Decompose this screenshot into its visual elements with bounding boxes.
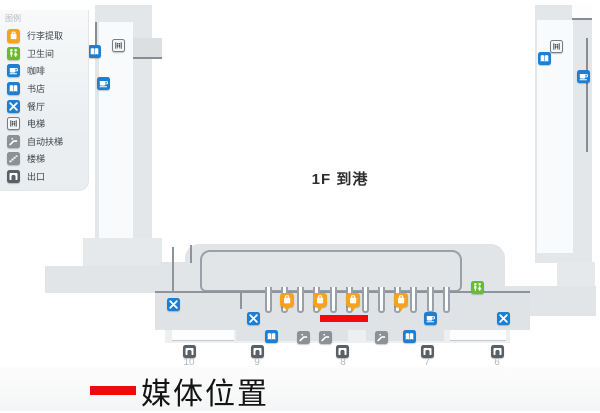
exit-icon: [7, 170, 20, 183]
right-pier-wall-line: [586, 38, 588, 152]
carousel-tooth: [378, 287, 385, 313]
toilet-icon: [471, 281, 484, 294]
gate-number-10: 10: [183, 357, 194, 368]
legend-item-label: 出口: [27, 170, 45, 183]
left-arm-lower: [45, 266, 163, 293]
concourse-slot: [172, 330, 234, 341]
carousel-tooth: [330, 287, 337, 313]
escalator-icon: [375, 331, 388, 344]
right-pier-tab: [572, 5, 592, 20]
escalator-icon: [7, 135, 20, 148]
wall-line: [190, 245, 192, 263]
toilet-icon: [7, 47, 20, 60]
arrivals-corridor: [155, 291, 530, 330]
escalator-icon: [297, 331, 310, 344]
escalator-icon: [319, 331, 332, 344]
restaurant-icon: [167, 298, 180, 311]
legend-item-label: 楼梯: [27, 152, 45, 165]
elevator-icon: [112, 39, 125, 52]
legend-item-label: 行李提取: [27, 29, 63, 42]
carousel-tooth: [410, 287, 417, 313]
carousel-tooth: [443, 287, 450, 313]
legend-item-bookstore: 书店: [0, 80, 88, 98]
legend-item-toilet: 卫生间: [0, 45, 88, 63]
legend-item-stairs: 楼梯: [0, 150, 88, 168]
legend-item-label: 餐厅: [27, 100, 45, 113]
airport-floor-map-page: 1F 到港 109876 图例 行李提取卫生间咖啡书店餐厅电梯自动扶梯楼梯出口 …: [0, 0, 600, 411]
media-line-swatch: [90, 386, 136, 395]
baggage-icon: [7, 29, 20, 43]
media-legend-label: 媒体位置: [141, 369, 269, 413]
legend-item-label: 卫生间: [27, 47, 54, 60]
legend-item-baggage: 行李提取: [0, 27, 88, 45]
legend-title: 图例: [5, 13, 88, 24]
legend-item-coffee: 咖啡: [0, 62, 88, 80]
gate-number-8: 8: [340, 357, 346, 368]
coffee-icon: [7, 64, 20, 77]
restaurant-icon: [497, 312, 510, 325]
concourse-slot: [450, 330, 506, 341]
floor-label: 1F 到港: [280, 168, 400, 189]
elevator-icon: [7, 117, 20, 130]
legend-item-restaurant: 餐厅: [0, 97, 88, 115]
elevator-icon: [550, 40, 563, 53]
baggage-claim-hall: [200, 250, 462, 292]
carousel-tooth: [427, 287, 434, 313]
carousel-tooth: [265, 287, 272, 313]
gate-number-9: 9: [254, 357, 260, 368]
bookstore-icon: [265, 330, 278, 343]
bookstore-icon: [7, 82, 20, 95]
bookstore-icon: [538, 52, 551, 65]
left-pier-notch: [133, 38, 162, 59]
bookstore-icon: [403, 330, 416, 343]
left-pier-inner: [99, 22, 133, 250]
legend-item-label: 咖啡: [27, 64, 45, 77]
legend-item-elevator: 电梯: [0, 115, 88, 133]
carousel-tooth: [362, 287, 369, 313]
carousel-tooth: [297, 287, 304, 313]
gate-number-6: 6: [494, 357, 500, 368]
baggage-icon: [346, 293, 360, 307]
legend-item-exit: 出口: [0, 168, 88, 186]
stairs-icon: [7, 152, 20, 165]
bookstore-icon: [88, 45, 101, 58]
legend-item-label: 书店: [27, 82, 45, 95]
coffee-icon: [577, 70, 590, 83]
coffee-icon: [97, 77, 110, 90]
legend-item-label: 电梯: [27, 117, 45, 130]
baggage-icon: [280, 293, 294, 307]
wall-line: [172, 247, 174, 291]
baggage-icon: [313, 293, 327, 307]
right-step: [557, 262, 595, 289]
baggage-icon: [394, 293, 408, 307]
media-position-line: [320, 315, 368, 322]
coffee-icon: [424, 312, 437, 325]
legend-items: 行李提取卫生间咖啡书店餐厅电梯自动扶梯楼梯出口: [0, 27, 88, 185]
wall-line: [240, 293, 242, 309]
legend-item-escalator: 自动扶梯: [0, 133, 88, 151]
gate-number-7: 7: [424, 357, 430, 368]
legend-item-label: 自动扶梯: [27, 135, 63, 148]
restaurant-icon: [7, 100, 20, 113]
legend-panel: 图例 行李提取卫生间咖啡书店餐厅电梯自动扶梯楼梯出口: [0, 10, 89, 191]
restaurant-icon: [247, 312, 260, 325]
